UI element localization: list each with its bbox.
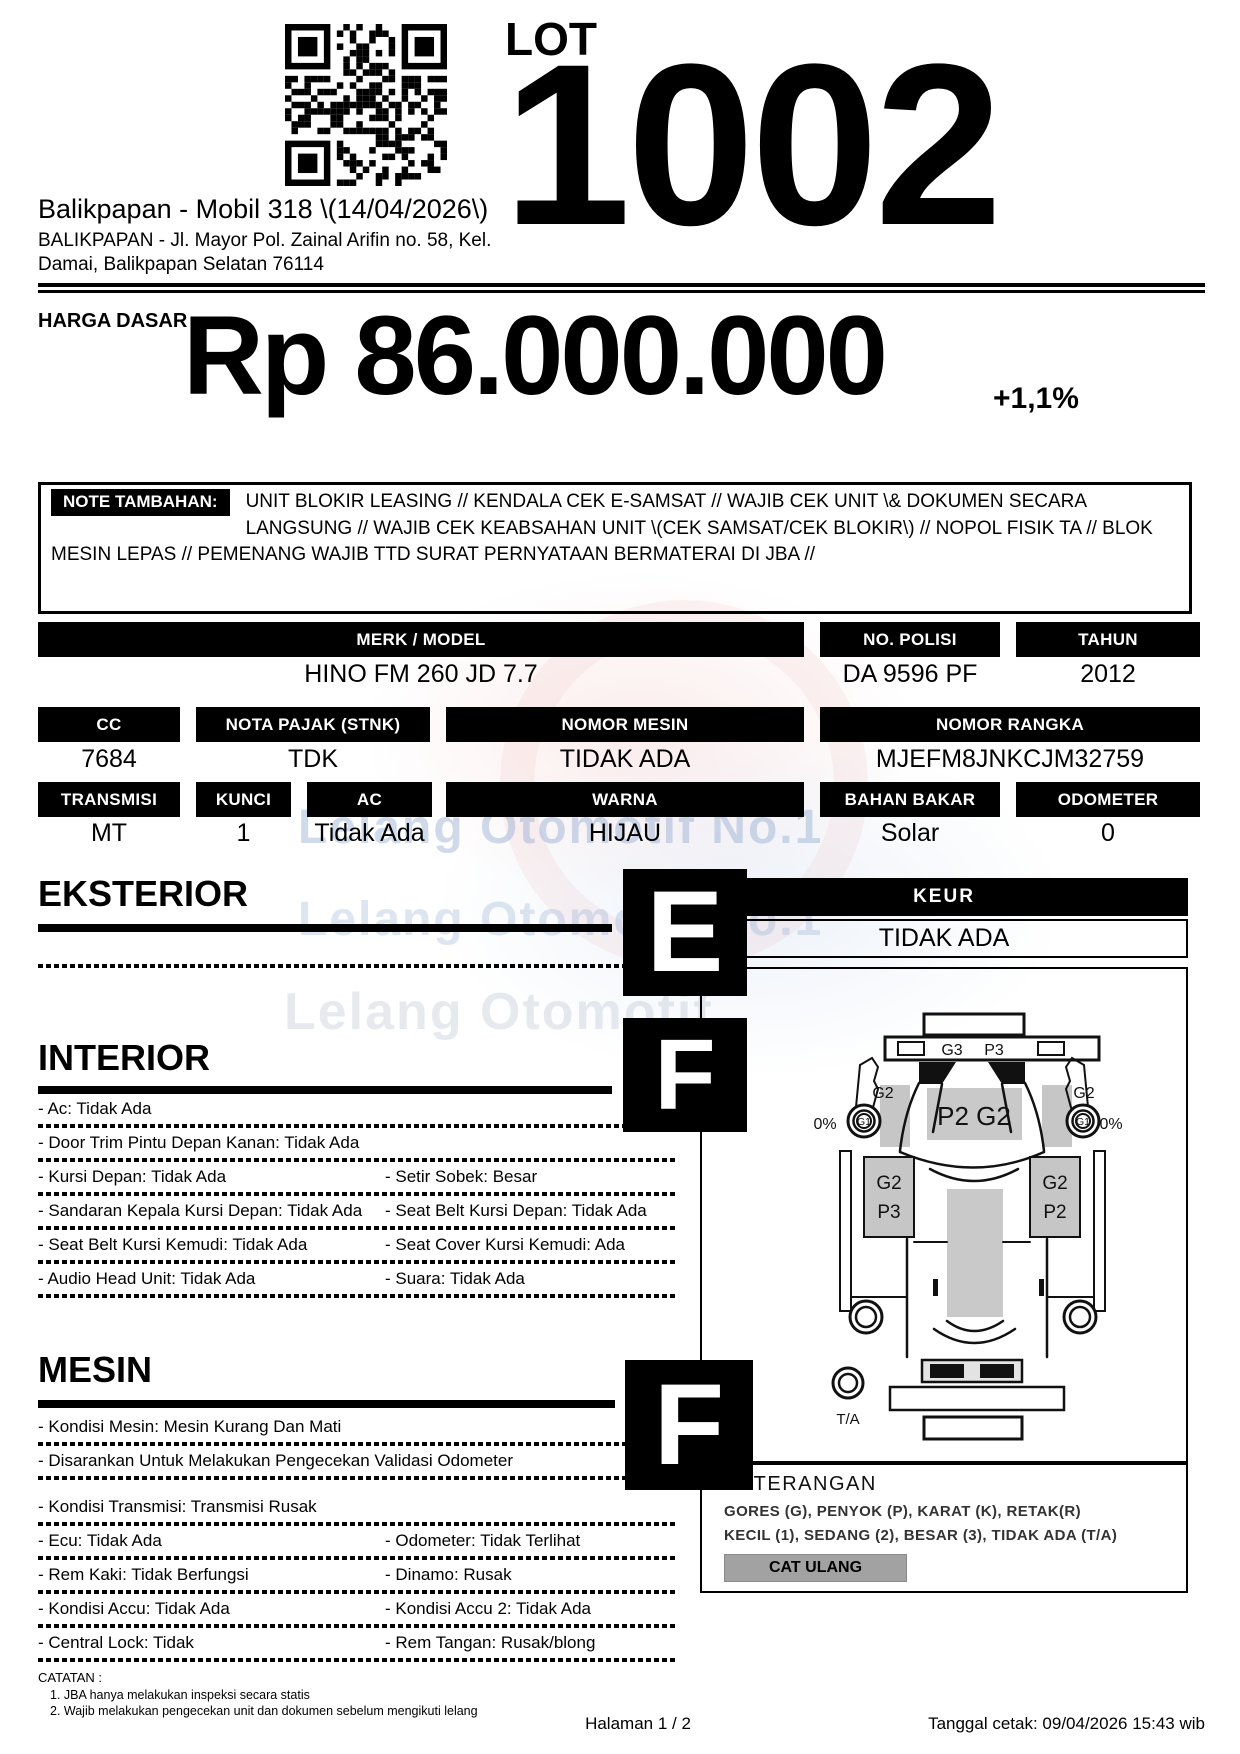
grade-interior: F	[623, 1018, 747, 1132]
keterangan-block: KETERANGAN GORES (G), PENYOK (P), KARAT …	[724, 1473, 1176, 1582]
auction-address-line1: BALIKPAPAN - Jl. Mayor Pol. Zainal Arifi…	[38, 230, 491, 253]
divider-rule-top	[38, 283, 1205, 287]
auction-title: Balikpapan - Mobil 318 \(14/04/2026\)	[38, 194, 488, 225]
keterangan-line1: GORES (G), PENYOK (P), KARAT (K), RETAK(…	[724, 1503, 1176, 1520]
diagram-label-wheel-left: G1	[857, 1116, 871, 1128]
note-label: NOTE TAMBAHAN:	[51, 489, 230, 516]
list-item: - Kondisi Transmisi: Transmisi Rusak	[38, 1480, 675, 1526]
header-warna: WARNA	[446, 782, 804, 817]
diagram-label-door-right-bottom: P2	[1043, 1202, 1066, 1223]
value-nota-pajak: TDK	[196, 744, 430, 784]
catatan-item-1: 1. JBA hanya melakukan inspeksi secara s…	[50, 1688, 310, 1702]
eksterior-items	[38, 940, 675, 968]
page-number: Halaman 1 / 2	[538, 1714, 738, 1734]
panel-divider	[702, 1461, 1186, 1465]
list-item: - Kursi Depan: Tidak Ada - Setir Sobek: …	[38, 1162, 675, 1196]
mesin-items: - Kondisi Mesin: Mesin Kurang Dan Mati -…	[38, 1412, 675, 1662]
header-merk-model: MERK / MODEL	[38, 622, 804, 657]
value-warna: HIJAU	[446, 818, 804, 858]
diagram-label-percent-left: 0%	[813, 1116, 836, 1133]
section-title-mesin: MESIN	[38, 1352, 152, 1388]
list-item: - Ecu: Tidak Ada - Odometer: Tidak Terli…	[38, 1526, 675, 1560]
value-tahun: 2012	[1016, 659, 1200, 699]
value-cc: 7684	[38, 744, 180, 784]
section-rule-eksterior	[38, 924, 612, 932]
section-title-eksterior: EKSTERIOR	[38, 876, 248, 912]
base-price-value: Rp 86.000.000	[183, 300, 885, 412]
auction-address-line2: Damai, Balikpapan Selatan 76114	[38, 254, 324, 277]
section-rule-interior	[38, 1086, 612, 1094]
diagram-label-g3: G3	[941, 1042, 962, 1059]
value-bahan-bakar: Solar	[820, 818, 1000, 858]
diagram-label-p3-front: P3	[984, 1042, 1004, 1059]
diagram-label-door-right-top: G2	[1042, 1173, 1067, 1194]
header-odometer: ODOMETER	[1016, 782, 1200, 817]
list-item: - Audio Head Unit: Tidak Ada - Suara: Ti…	[38, 1264, 675, 1298]
header-tahun: TAHUN	[1016, 622, 1200, 657]
diagram-label-wheel-right: G1	[1076, 1116, 1090, 1128]
value-nomor-rangka: MJEFM8JNKCJM32759	[820, 744, 1200, 784]
keterangan-line2: KECIL (1), SEDANG (2), BESAR (3), TIDAK …	[724, 1527, 1176, 1544]
list-item: - Door Trim Pintu Depan Kanan: Tidak Ada	[38, 1128, 675, 1162]
keur-header: KEUR	[700, 878, 1188, 916]
header-bahan-bakar: BAHAN BAKAR	[820, 782, 1000, 817]
diagram-label-percent-right: 0%	[1099, 1116, 1122, 1133]
value-ac: Tidak Ada	[307, 818, 432, 890]
value-nomor-mesin: TIDAK ADA	[446, 744, 804, 784]
list-item: - Ac: Tidak Ada	[38, 1094, 675, 1128]
header-cc: CC	[38, 707, 180, 742]
list-item: - Rem Kaki: Tidak Berfungsi - Dinamo: Ru…	[38, 1560, 675, 1594]
auction-lot-sheet: Lelang Otomotif No.1 Lelang Otomotif No.…	[0, 0, 1240, 1754]
vehicle-top-view-diagram: G3 P3 G2 G2 P2 G2 G1 G1 0% 0% G2 P3 G2 P…	[702, 969, 1186, 1459]
list-item: - Central Lock: Tidak - Rem Tangan: Rusa…	[38, 1628, 675, 1662]
base-price-label: HARGA DASAR :	[38, 310, 199, 333]
print-date: Tanggal cetak: 09/04/2026 15:43 wib	[860, 1714, 1205, 1734]
grade-mesin: F	[625, 1360, 753, 1490]
interior-items: - Ac: Tidak Ada - Door Trim Pintu Depan …	[38, 1094, 675, 1298]
cat-ulang-badge: CAT ULANG	[724, 1554, 907, 1582]
value-kunci: 1	[196, 818, 291, 858]
diagram-label-cab: P2 G2	[937, 1101, 1011, 1131]
header-no-polisi: NO. POLISI	[820, 622, 1000, 657]
header-transmisi: TRANSMISI	[38, 782, 180, 817]
header-ac: AC	[307, 782, 432, 817]
list-item: - Kondisi Mesin: Mesin Kurang Dan Mati	[38, 1412, 675, 1446]
keur-value: TIDAK ADA	[700, 919, 1188, 958]
list-item: - Kondisi Accu: Tidak Ada - Kondisi Accu…	[38, 1594, 675, 1628]
section-title-interior: INTERIOR	[38, 1040, 210, 1076]
list-item: - Sandaran Kepala Kursi Depan: Tidak Ada…	[38, 1196, 675, 1230]
damage-diagram-panel: G3 P3 G2 G2 P2 G2 G1 G1 0% 0% G2 P3 G2 P…	[700, 967, 1188, 1593]
value-odometer: 0	[1016, 818, 1200, 858]
qr-code	[285, 24, 447, 186]
keterangan-title: KETERANGAN	[724, 1473, 1176, 1496]
list-item: - Disarankan Untuk Melakukan Pengecekan …	[38, 1446, 675, 1480]
grade-eksterior: E	[623, 869, 747, 996]
value-transmisi: MT	[38, 818, 180, 858]
header-nota-pajak: NOTA PAJAK (STNK)	[196, 707, 430, 742]
section-rule-mesin	[38, 1400, 615, 1408]
note-box: NOTE TAMBAHAN: UNIT BLOKIR LEASING // KE…	[38, 482, 1192, 614]
catatan-label: CATATAN :	[38, 1670, 102, 1685]
header-nomor-rangka: NOMOR RANGKA	[820, 707, 1200, 742]
header-nomor-mesin: NOMOR MESIN	[446, 707, 804, 742]
diagram-label-mirror-left: G2	[872, 1085, 893, 1102]
list-item: - Seat Belt Kursi Kemudi: Tidak Ada - Se…	[38, 1230, 675, 1264]
price-increment: +1,1%	[993, 382, 1079, 416]
diagram-label-door-left-bottom: P3	[877, 1202, 900, 1223]
header-kunci: KUNCI	[196, 782, 291, 817]
diagram-label-mirror-right: G2	[1073, 1085, 1094, 1102]
catatan-item-2: 2. Wajib melakukan pengecekan unit dan d…	[50, 1704, 478, 1718]
list-item	[38, 940, 675, 968]
lot-number: 1002	[503, 30, 999, 260]
diagram-label-door-left-top: G2	[876, 1173, 901, 1194]
diagram-label-spare: T/A	[836, 1411, 859, 1428]
value-no-polisi: DA 9596 PF	[820, 659, 1000, 699]
value-merk-model: HINO FM 260 JD 7.7	[38, 659, 804, 699]
